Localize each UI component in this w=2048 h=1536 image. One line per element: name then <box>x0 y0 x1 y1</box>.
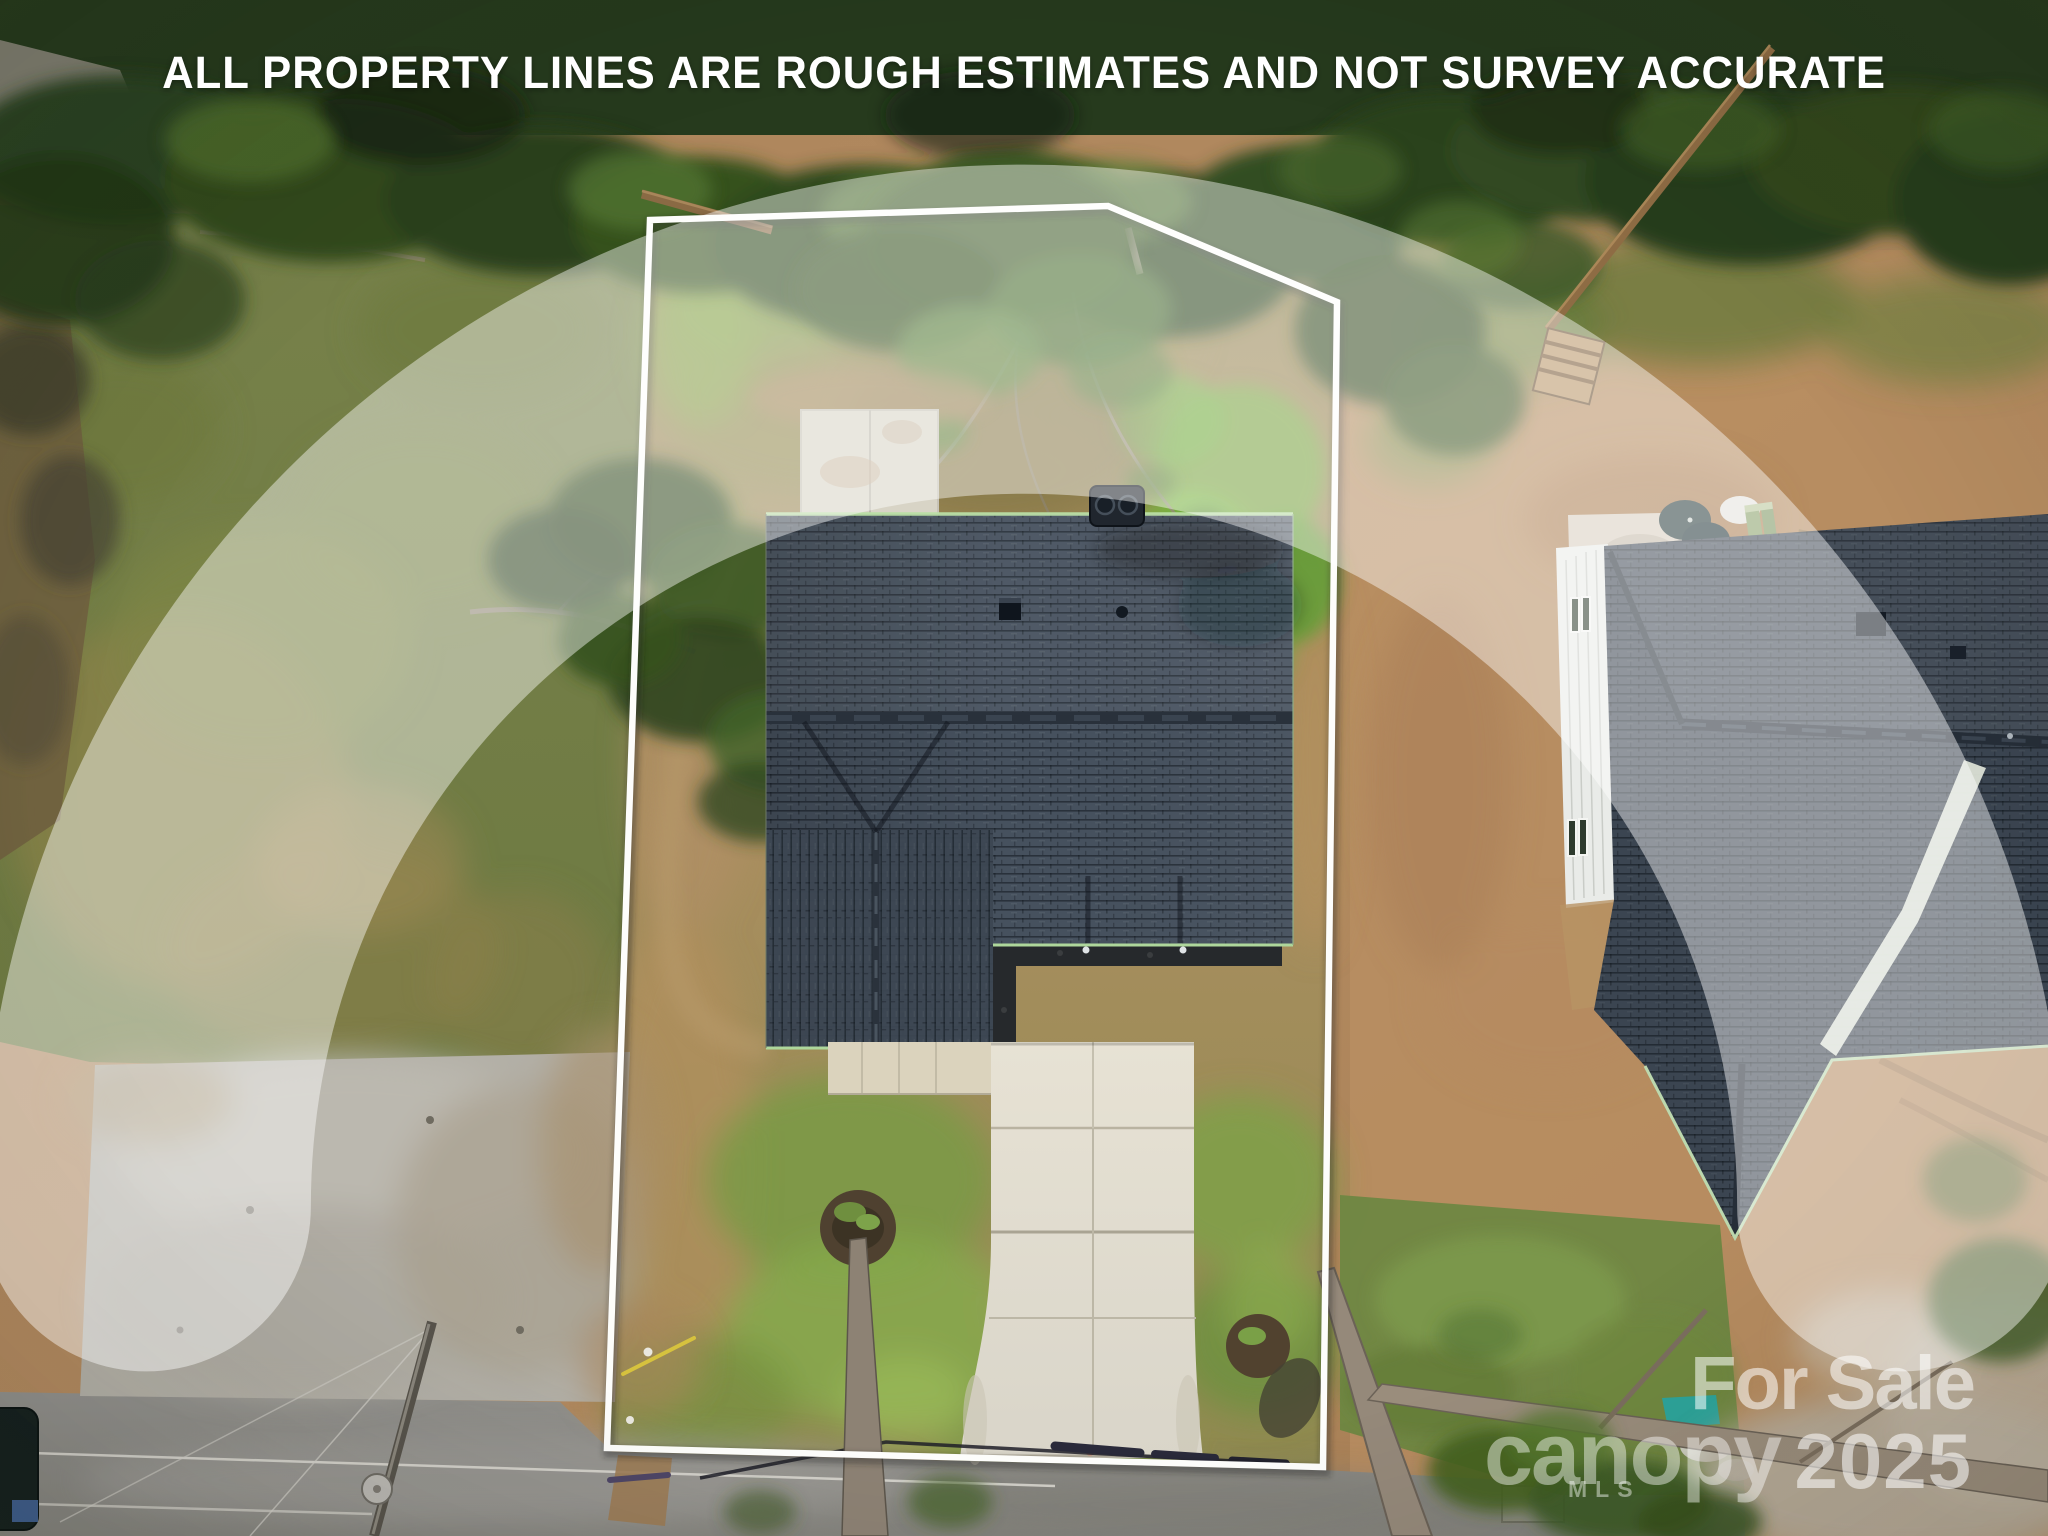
watermark-mls-label: MLS <box>1568 1478 1641 1501</box>
aerial-photo: ALL PROPERTY LINES ARE ROUGH ESTIMATES A… <box>0 0 2048 1536</box>
canopy-arc-icon <box>0 0 2048 1536</box>
